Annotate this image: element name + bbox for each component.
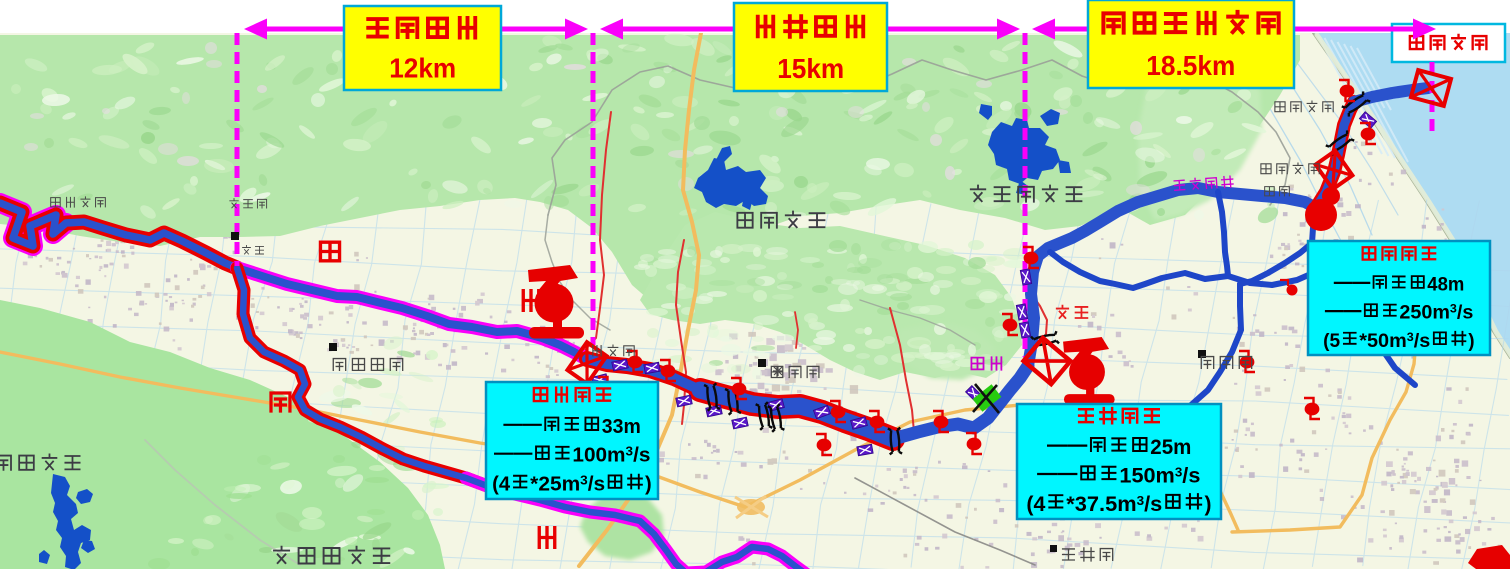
svg-text:*25m3​/s: *25m3​/s <box>530 473 605 496</box>
svg-text:): ) <box>1205 493 1212 516</box>
svg-text:18.5km: 18.5km <box>1146 50 1235 81</box>
svg-text:*37.5m3​/s: *37.5m3​/s <box>1066 493 1162 516</box>
svg-text:33m: 33m <box>602 416 641 438</box>
svg-text:100m3​/s: 100m3​/s <box>572 444 650 467</box>
svg-text:(4: (4 <box>1026 493 1045 516</box>
svg-text:12km: 12km <box>389 52 456 83</box>
svg-text:): ) <box>1468 331 1474 352</box>
svg-text:(5: (5 <box>1323 331 1340 352</box>
svg-text:(4: (4 <box>492 474 511 496</box>
svg-text:15km: 15km <box>777 53 844 84</box>
svg-text:250m3​/s: 250m3​/s <box>1399 302 1473 324</box>
svg-text:48m: 48m <box>1427 275 1464 296</box>
svg-text:150m3​/s: 150m3​/s <box>1119 464 1200 487</box>
svg-text:*50m3​/s: *50m3​/s <box>1359 330 1430 352</box>
svg-text:25m: 25m <box>1150 436 1191 459</box>
svg-text:): ) <box>645 474 652 496</box>
